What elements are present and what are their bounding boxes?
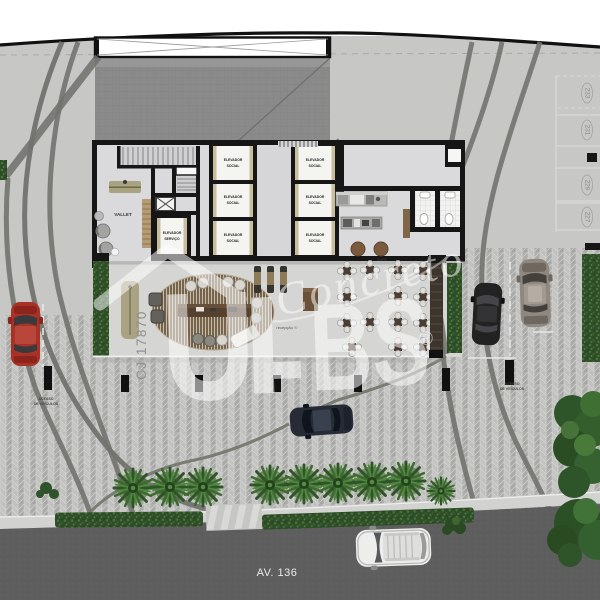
svg-text:SOCIAL: SOCIAL (309, 239, 322, 243)
svg-text:ACESSO: ACESSO (504, 382, 519, 386)
svg-text:SOCIAL: SOCIAL (309, 201, 322, 205)
svg-text:ACESSO: ACESSO (38, 397, 53, 401)
svg-text:231: 231 (583, 125, 590, 136)
svg-text:SOCIAL: SOCIAL (309, 164, 322, 168)
svg-text:ELEVADOR: ELEVADOR (224, 233, 243, 237)
svg-text:SOCIAL: SOCIAL (227, 164, 240, 168)
svg-text:®: ® (419, 329, 433, 350)
svg-text:SOCIAL: SOCIAL (227, 239, 240, 243)
svg-text:ELEVADOR: ELEVADOR (306, 158, 325, 162)
svg-text:ELEVADOR: ELEVADOR (224, 158, 243, 162)
svg-text:ELEVADOR: ELEVADOR (224, 195, 243, 199)
svg-text:ELEVADOR: ELEVADOR (306, 233, 325, 237)
svg-text:233: 233 (583, 88, 590, 99)
svg-text:DE VEÍCULOS: DE VEÍCULOS (34, 401, 59, 406)
svg-text:ELEVADOR: ELEVADOR (306, 195, 325, 199)
svg-text:DE VEÍCULOS: DE VEÍCULOS (500, 386, 525, 391)
svg-text:AV. 136: AV. 136 (257, 567, 298, 579)
svg-text:CJ 17870: CJ 17870 (134, 310, 149, 380)
svg-text:229: 229 (583, 180, 590, 191)
svg-text:VALLET: VALLET (114, 212, 132, 217)
svg-text:recepção ☉: recepção ☉ (276, 325, 298, 330)
svg-text:SERVIÇO: SERVIÇO (164, 237, 180, 241)
svg-text:SOCIAL: SOCIAL (227, 201, 240, 205)
svg-text:227: 227 (583, 212, 590, 223)
svg-text:ELEVADOR: ELEVADOR (163, 231, 182, 235)
